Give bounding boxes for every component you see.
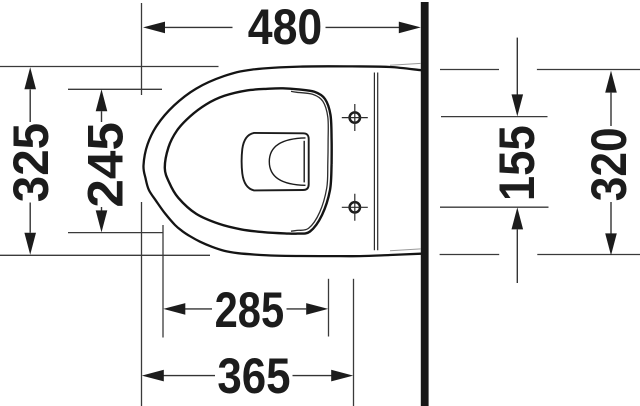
svg-text:325: 325 — [3, 123, 59, 202]
svg-text:365: 365 — [217, 348, 290, 404]
svg-text:285: 285 — [215, 282, 285, 338]
svg-text:480: 480 — [248, 0, 323, 55]
svg-text:245: 245 — [78, 122, 134, 208]
svg-text:155: 155 — [489, 125, 545, 201]
svg-text:320: 320 — [581, 127, 637, 201]
